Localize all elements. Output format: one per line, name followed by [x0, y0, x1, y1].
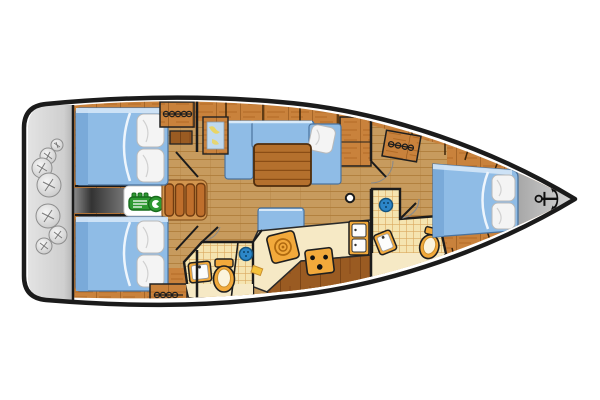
- nightstand: [170, 131, 192, 144]
- pillow: [137, 255, 164, 287]
- fender-icon: [49, 226, 67, 244]
- shower-jet: [243, 251, 245, 253]
- shower-jet: [387, 202, 389, 204]
- stern-platform: [28, 105, 73, 300]
- saloon-table: [254, 144, 311, 186]
- step: [186, 184, 195, 216]
- stove-top: [305, 247, 335, 275]
- shower-icon: [380, 199, 393, 212]
- step: [165, 184, 174, 216]
- pillow: [137, 149, 164, 182]
- shower-head: [240, 248, 253, 261]
- floor-plan-canvas: ⚓: [0, 0, 600, 400]
- fridge-door: [352, 239, 366, 252]
- sink-icon: [188, 261, 212, 283]
- stove-icon: [305, 247, 335, 275]
- yacht-floor-plan: ⚓: [0, 0, 600, 400]
- door-handle: [354, 244, 356, 246]
- interior: ⚓: [20, 90, 580, 310]
- shower-jet: [383, 202, 385, 204]
- sink-icon: [266, 230, 300, 264]
- bed-shadow: [76, 108, 88, 185]
- fridge-door: [352, 224, 366, 237]
- hanging-locker-forward: [382, 130, 421, 162]
- stern-area: [28, 105, 73, 300]
- chart-icon: [203, 117, 228, 154]
- shower-icon: [240, 248, 253, 261]
- fridge-icon: [349, 221, 369, 255]
- toilet-icon: [214, 259, 235, 292]
- pillow: [492, 175, 515, 201]
- mast-icon: [346, 194, 354, 202]
- settee-left: [225, 121, 253, 179]
- bed-highlight: [76, 108, 168, 113]
- fender-icon: [36, 204, 60, 228]
- forward-cabin: [433, 164, 518, 237]
- step: [197, 184, 206, 217]
- door-handle: [354, 229, 356, 231]
- shower-jet: [385, 206, 387, 208]
- step: [176, 184, 185, 216]
- bed-shadow: [76, 217, 88, 291]
- shower-head: [380, 199, 393, 212]
- pillow: [492, 203, 515, 229]
- toilet-seat: [218, 269, 231, 287]
- engine-compartment: [73, 186, 165, 216]
- bed-shadow: [433, 164, 444, 237]
- pillow: [137, 221, 164, 253]
- fender-icon: [37, 173, 61, 197]
- companionway-icon: [162, 180, 207, 220]
- shower-jet: [245, 255, 247, 257]
- fender-icon: [36, 238, 52, 254]
- chart-paper: [207, 122, 224, 149]
- shower-jet: [247, 251, 249, 253]
